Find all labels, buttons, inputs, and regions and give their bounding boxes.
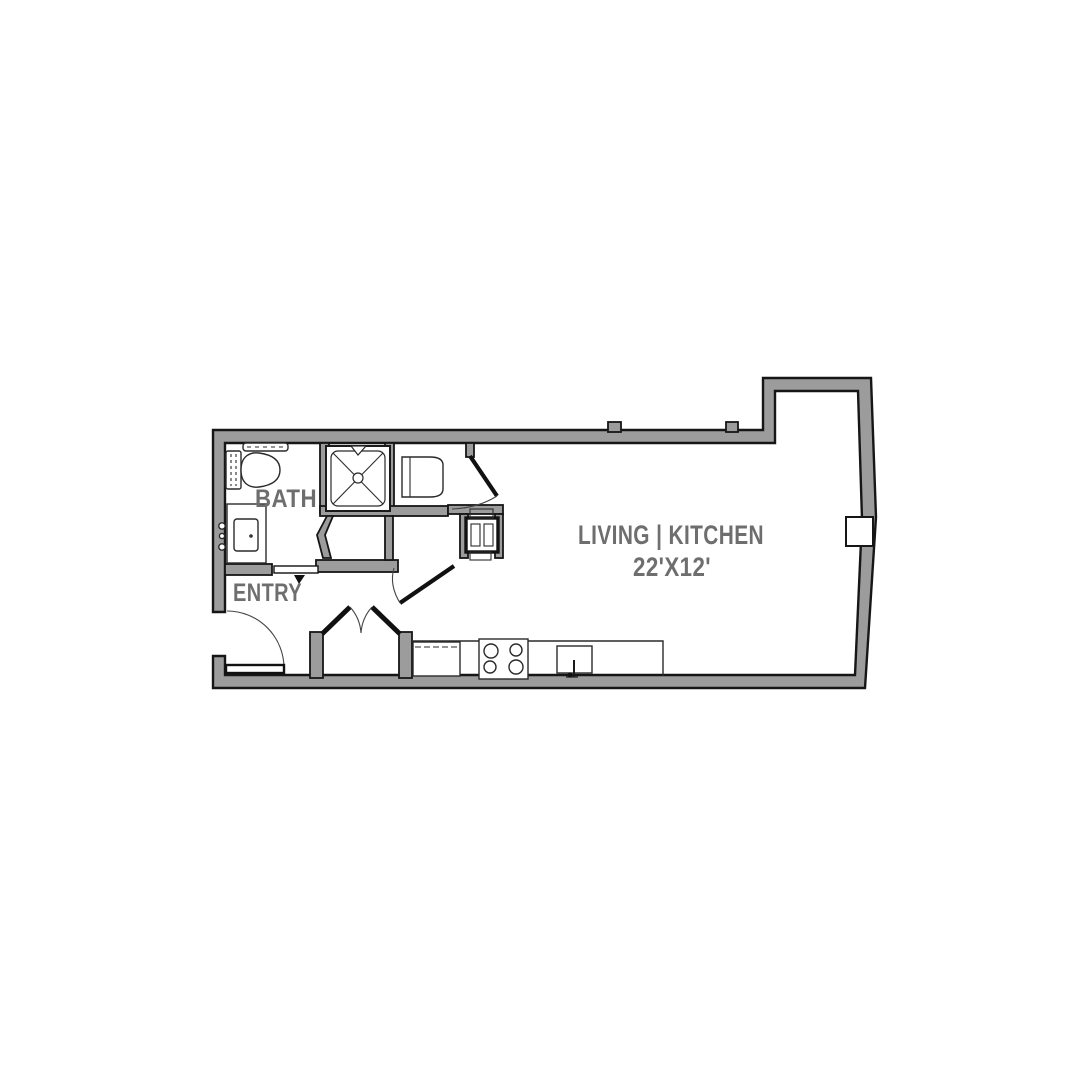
wd-door-stub: [466, 443, 474, 457]
wall-bump-right: [726, 422, 738, 432]
entry-door-panel: [226, 665, 284, 673]
closet-bottom-wall: [316, 560, 398, 572]
entry-closet-left-stub: [310, 632, 323, 678]
washer-dryer: [402, 457, 443, 497]
refrigerator: [413, 642, 460, 676]
closet-door-right-arc: [361, 607, 372, 633]
hall-door-panel: [400, 566, 454, 603]
closet-door-right-panel: [372, 607, 400, 634]
bath-pocket-door: [274, 566, 318, 573]
kitchen-sink: [557, 646, 592, 678]
closet-right-wall: [385, 516, 393, 560]
toilet: [226, 451, 280, 489]
right-wall-notch: [846, 517, 873, 546]
living-dims-label: 22'X12': [633, 552, 711, 582]
bath-label: BATH: [255, 485, 317, 513]
kitchen-fixtures: [412, 639, 663, 679]
wd-door-panel: [470, 456, 497, 496]
entry-door-arc: [227, 611, 284, 668]
living-kitchen-label: LIVING | KITCHEN: [578, 520, 764, 550]
closet-door-left-arc: [350, 607, 361, 633]
floor-plan-page: BATH ENTRY LIVING | KITCHEN 22'X12': [0, 0, 1080, 1080]
entry-closet-right-stub: [399, 632, 412, 678]
wall-bump-left: [608, 422, 621, 432]
water-heater: [466, 509, 498, 560]
hall-door-arc: [392, 568, 400, 603]
closet-chamfer-wall: [317, 516, 333, 558]
shower: [326, 446, 390, 511]
floor-plan-drawing: BATH ENTRY LIVING | KITCHEN 22'X12': [0, 0, 1080, 1080]
closet-door-left-panel: [322, 607, 350, 634]
bath-bottom-wall: [225, 564, 272, 575]
range-stove: [479, 639, 528, 679]
entry-label: ENTRY: [233, 579, 302, 607]
